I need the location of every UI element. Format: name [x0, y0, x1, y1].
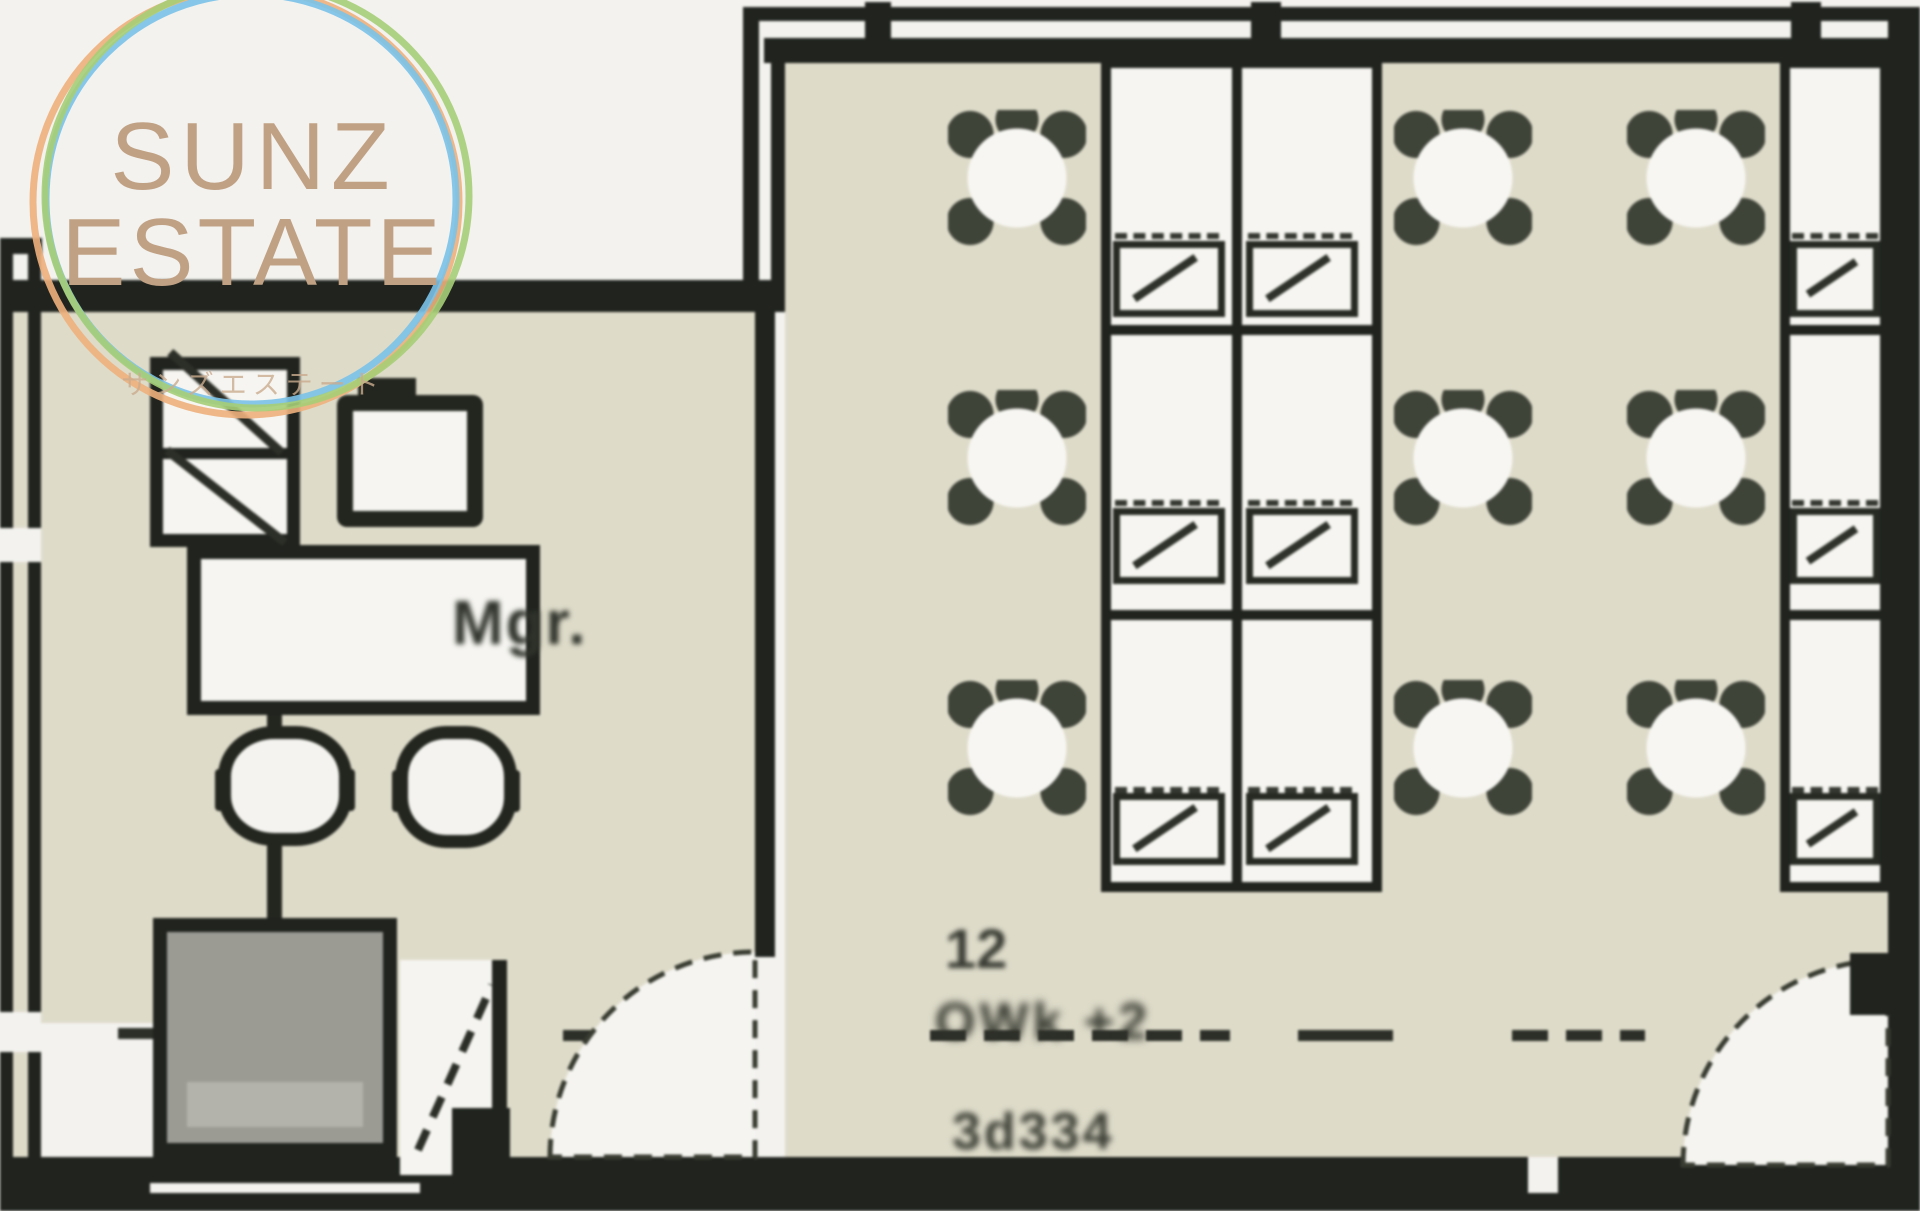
island2-row-divider [1780, 610, 1890, 620]
island1-row-divider [1101, 610, 1382, 620]
desk-dash [1115, 500, 1219, 506]
desk-count-label: 12 [945, 916, 1007, 981]
pc-icon [1246, 793, 1358, 865]
pc-diagonal [1806, 259, 1858, 298]
guest-chair [218, 726, 352, 846]
door-arc-left [550, 952, 755, 1157]
pc-icon [1246, 241, 1358, 317]
sunz-estate-logo: SUNZ ESTATE サンズエステート [18, 0, 488, 452]
manager-room-label: Mgr. [452, 588, 587, 659]
pc-icon [1246, 508, 1358, 584]
dimension-label: OWk +2 [935, 992, 1151, 1052]
pc-diagonal [1265, 521, 1331, 569]
office-chair [948, 680, 1086, 816]
pc-icon [1113, 508, 1225, 584]
office-chair [948, 390, 1086, 526]
logo-line1: SUNZ [110, 103, 395, 210]
pc-diagonal [1265, 804, 1331, 852]
office-chair [1627, 680, 1765, 816]
desk-dash [1792, 233, 1878, 239]
door-hinge-right [1850, 953, 1892, 1015]
pc-diagonal [1806, 809, 1858, 848]
office-chair [1394, 110, 1532, 246]
door-hinge-left [452, 1108, 510, 1175]
office-chair [1394, 680, 1532, 816]
pc-icon [1790, 793, 1880, 865]
pc-icon [1790, 508, 1880, 584]
pc-diagonal [1265, 254, 1331, 302]
logo-subtitle: サンズエステート [121, 370, 384, 400]
desk-dash [1115, 233, 1219, 239]
office-chair [1627, 390, 1765, 526]
copier [153, 918, 397, 1157]
desk-island-2 [1780, 58, 1890, 892]
floorplan-screenshot: Mgr. [0, 0, 1920, 1211]
island1-col-divider [1232, 58, 1242, 892]
desk-dash [1248, 500, 1352, 506]
office-chair [948, 110, 1086, 246]
pc-diagonal [1132, 804, 1198, 852]
guest-chair [395, 726, 517, 848]
desk-dash [1248, 233, 1352, 239]
logo-line2: ESTATE [61, 199, 444, 306]
pc-diagonal [1806, 526, 1858, 565]
desk-dash [1792, 500, 1878, 506]
copier-tray [187, 1082, 363, 1127]
island1-row-divider [1101, 325, 1382, 335]
pc-diagonal [1132, 254, 1198, 302]
office-chair [1627, 110, 1765, 246]
pc-icon [1790, 241, 1880, 317]
island2-row-divider [1780, 325, 1890, 335]
cabinet-diagonal [164, 447, 288, 546]
pc-icon [1113, 241, 1225, 317]
pc-diagonal [1132, 521, 1198, 569]
area-label: 3d334 [952, 1102, 1114, 1162]
pc-icon [1113, 793, 1225, 865]
office-chair [1394, 390, 1532, 526]
